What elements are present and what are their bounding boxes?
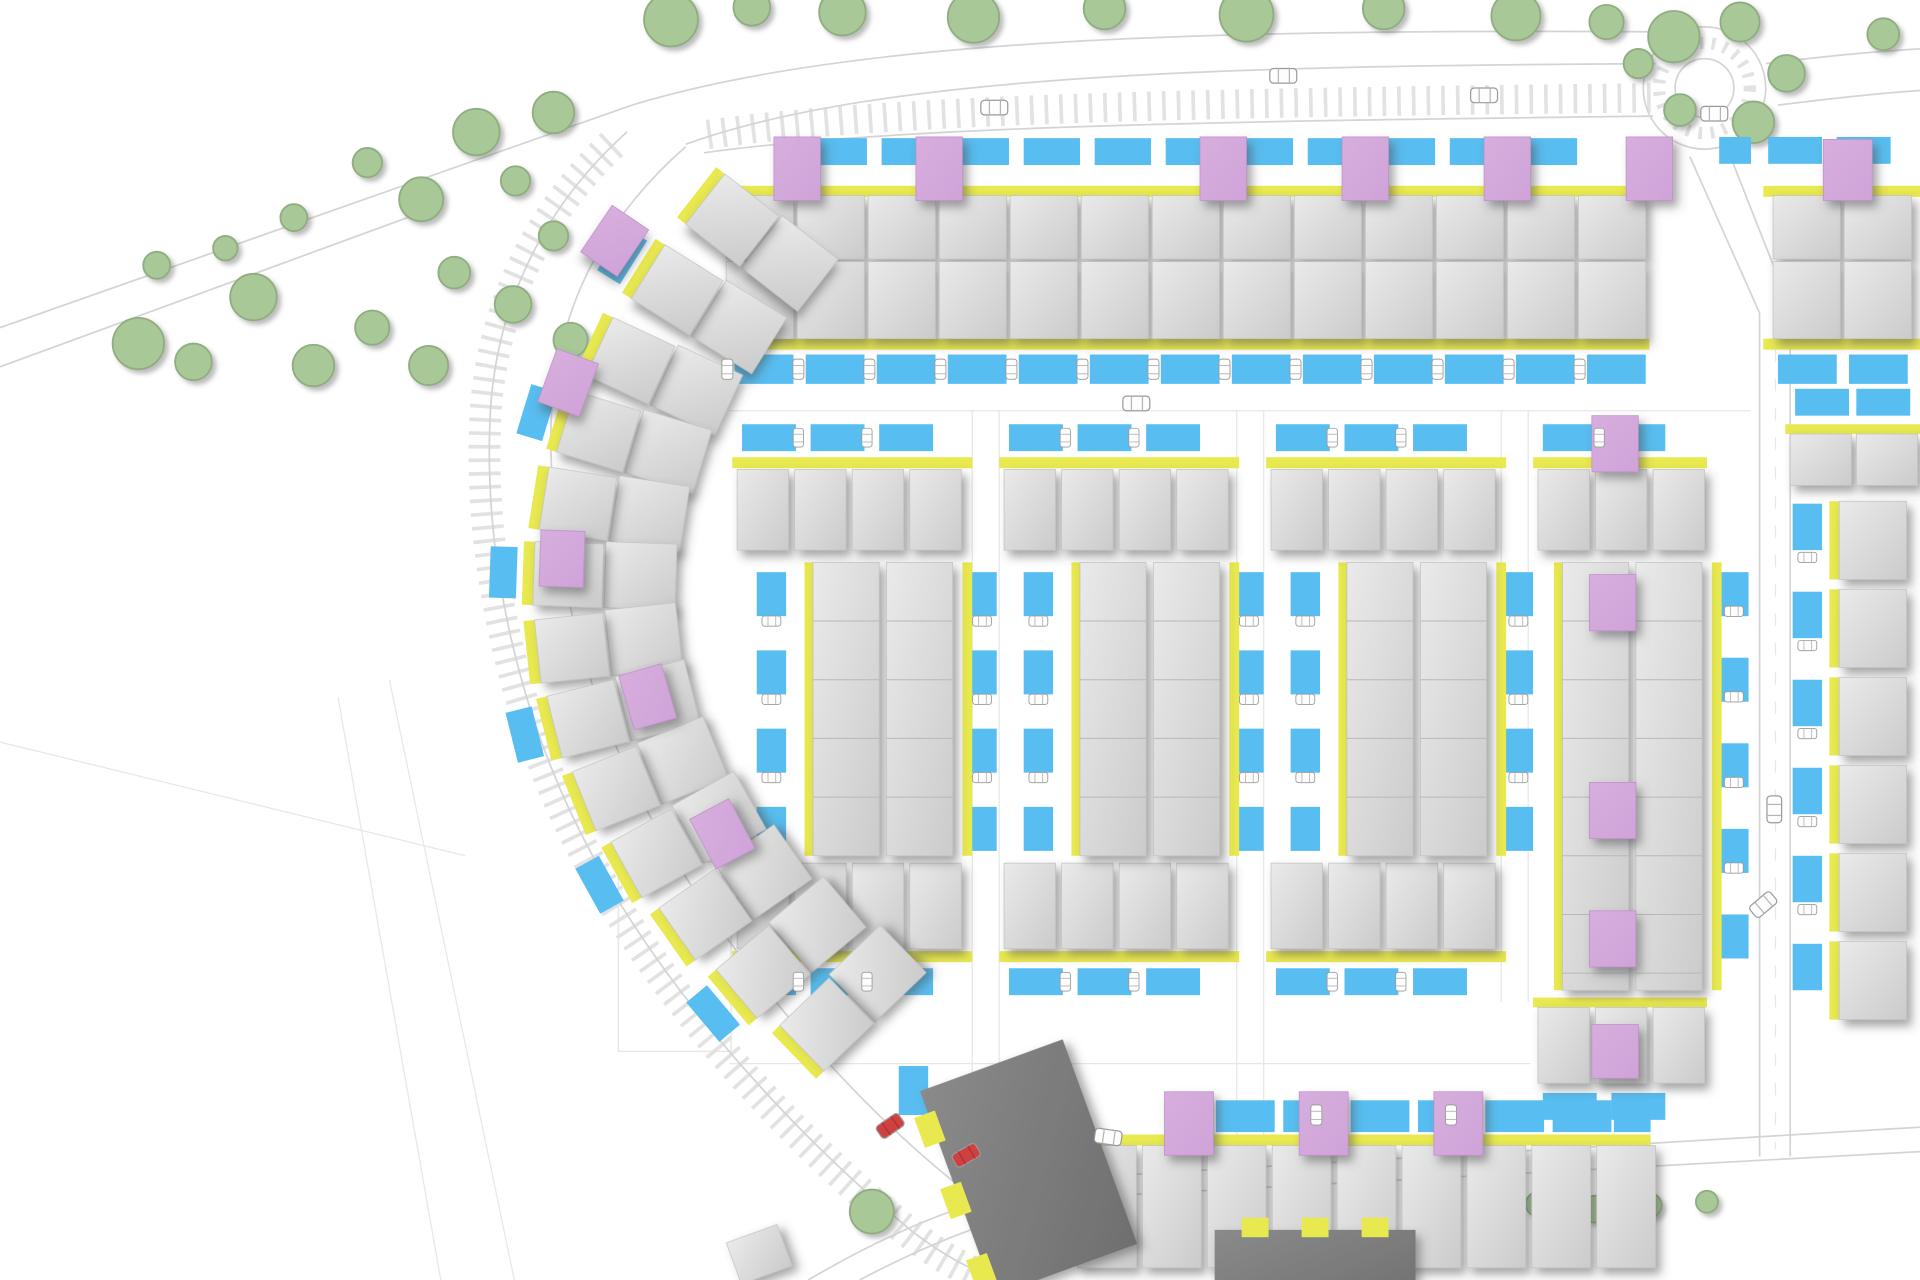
house — [1271, 469, 1322, 550]
tree-icon — [355, 311, 389, 345]
car-icon — [973, 616, 992, 626]
car-icon — [793, 972, 803, 991]
tree-icon — [1768, 55, 1805, 92]
house — [1152, 262, 1219, 339]
car-body — [1006, 359, 1017, 379]
car-body — [973, 772, 992, 782]
house — [1839, 853, 1906, 931]
parking-space — [1095, 138, 1151, 165]
house — [1081, 262, 1148, 339]
house — [1653, 1007, 1704, 1083]
parking-space — [1291, 807, 1320, 851]
car-icon — [1296, 772, 1315, 782]
tree-icon — [409, 346, 448, 385]
tree-icon — [113, 318, 164, 369]
car-body — [973, 694, 992, 704]
house — [1142, 1146, 1201, 1268]
car-body — [1724, 777, 1743, 787]
car-icon — [1574, 359, 1585, 379]
parking-space — [1504, 650, 1533, 694]
parking-space — [1719, 914, 1748, 958]
tree-icon — [175, 344, 212, 381]
house — [1119, 469, 1170, 550]
house — [1653, 469, 1704, 550]
tree-icon — [948, 0, 999, 43]
house — [910, 469, 961, 550]
tree-icon — [453, 109, 500, 155]
parking-space — [1291, 729, 1320, 773]
parking-space — [1232, 355, 1291, 384]
parking-space — [1504, 729, 1533, 773]
tree-icon — [644, 0, 698, 46]
car-body — [1077, 359, 1088, 379]
entrance-stub — [1242, 1218, 1269, 1238]
car-body — [793, 972, 803, 991]
apartment-block-group — [1215, 1218, 1416, 1280]
house — [1436, 196, 1503, 260]
car-body — [1396, 428, 1406, 447]
car-icon — [1148, 359, 1159, 379]
car-icon — [1798, 640, 1817, 650]
parking-space — [948, 355, 1007, 384]
parking-space — [1351, 1100, 1410, 1132]
house — [1856, 434, 1917, 485]
car-icon — [1270, 68, 1297, 83]
tree-icon — [143, 252, 170, 279]
car-icon — [1594, 428, 1604, 447]
parking-space — [806, 355, 865, 384]
tree-icon — [1720, 2, 1759, 41]
tree-icon — [501, 166, 530, 195]
terrace-block — [1636, 562, 1702, 990]
parking-space — [1009, 424, 1063, 451]
entrance-strip — [999, 951, 1239, 962]
entrance-strip — [1229, 562, 1239, 855]
entrance-strip — [962, 562, 972, 855]
entrance-strip — [1829, 589, 1839, 667]
house — [1578, 262, 1645, 339]
parking-space — [1024, 729, 1053, 773]
car-icon — [1701, 106, 1728, 121]
parking-space — [879, 424, 933, 451]
car-body — [1327, 428, 1337, 447]
car-body — [722, 359, 733, 379]
terrace-block — [1080, 562, 1146, 855]
entrance-strip — [722, 339, 1649, 350]
parking-space — [1614, 1100, 1651, 1132]
car-icon — [1767, 796, 1782, 823]
terrace-block — [1420, 562, 1486, 855]
house — [1436, 262, 1503, 339]
car-icon — [1327, 972, 1337, 991]
car-icon — [1509, 616, 1528, 626]
house — [868, 196, 935, 260]
parking-space — [1793, 504, 1822, 550]
parking-space — [1161, 355, 1220, 384]
car-body — [1432, 359, 1443, 379]
parking-space — [489, 546, 518, 598]
accent-house — [1299, 1092, 1348, 1156]
car-body — [1509, 772, 1528, 782]
house — [539, 467, 617, 540]
car-body — [1240, 694, 1259, 704]
car-body — [973, 616, 992, 626]
car-icon — [973, 694, 992, 704]
accent-house — [1434, 1092, 1483, 1156]
parking-space — [1344, 968, 1398, 995]
house — [1223, 196, 1290, 260]
parking-space — [1793, 592, 1822, 638]
house — [1152, 196, 1219, 260]
arc-accent-group — [539, 530, 585, 588]
parking-space — [877, 355, 936, 384]
car-body — [1724, 606, 1743, 616]
car-icon — [862, 972, 872, 991]
house — [1004, 469, 1055, 550]
house — [1773, 196, 1840, 260]
parking-space — [1856, 389, 1910, 416]
house — [1010, 262, 1077, 339]
entrance-stub — [1302, 1218, 1329, 1238]
car-icon — [1290, 359, 1301, 379]
car-body — [1219, 359, 1230, 379]
parking-space — [1291, 650, 1320, 694]
accent-house — [1626, 137, 1673, 201]
accent-house — [1589, 911, 1636, 967]
parking-space — [1516, 355, 1575, 384]
parking-space — [811, 424, 865, 451]
car-icon — [973, 772, 992, 782]
entrance-strip — [732, 457, 972, 468]
house — [604, 542, 677, 610]
car-icon — [1798, 728, 1817, 738]
car-body — [1396, 972, 1406, 991]
car-icon — [1432, 359, 1443, 379]
terrace-block — [1347, 562, 1413, 855]
parking-space — [1719, 137, 1751, 164]
accent-house — [539, 530, 585, 588]
house — [1839, 677, 1906, 755]
tree-icon — [399, 177, 443, 221]
entrance-strip — [1712, 562, 1722, 990]
car-icon — [1060, 428, 1070, 447]
tree-icon — [1696, 1191, 1718, 1213]
car-body — [1724, 692, 1743, 702]
tree-icon — [293, 345, 335, 387]
house — [1386, 469, 1437, 550]
accent-house — [1342, 137, 1389, 201]
parking-space — [757, 650, 786, 694]
tree-icon — [353, 148, 382, 177]
car-icon — [1798, 552, 1817, 562]
tree-icon — [1867, 18, 1899, 50]
car-icon — [793, 359, 804, 379]
car-icon — [762, 772, 781, 782]
house — [1177, 469, 1228, 550]
house — [1507, 262, 1574, 339]
car-icon — [1129, 972, 1139, 991]
car-body — [1509, 694, 1528, 704]
house — [1467, 1146, 1526, 1268]
car-icon — [1396, 972, 1406, 991]
car-body — [1471, 88, 1498, 103]
tree-icon — [1624, 49, 1653, 78]
entrance-strip — [1763, 339, 1920, 350]
parking-space — [1276, 424, 1330, 451]
tree-icon — [1733, 101, 1775, 143]
car-body — [1148, 359, 1159, 379]
house — [1444, 863, 1495, 949]
car-icon — [762, 694, 781, 704]
entrance-strip — [1829, 677, 1839, 755]
car-icon — [1396, 428, 1406, 447]
parking-space — [1146, 968, 1200, 995]
car-body — [935, 359, 946, 379]
house — [1177, 863, 1228, 949]
tree-icon — [539, 221, 568, 250]
house — [1062, 863, 1113, 949]
house — [1271, 863, 1322, 949]
car-icon — [1361, 359, 1372, 379]
car-icon — [1798, 904, 1817, 914]
car-icon — [1129, 428, 1139, 447]
car-icon — [981, 100, 1008, 115]
car-icon — [1724, 777, 1743, 787]
car-icon — [1503, 359, 1514, 379]
entrance-strip — [1829, 765, 1839, 843]
car-icon — [1724, 606, 1743, 616]
car-icon — [1798, 816, 1817, 826]
accent-house — [774, 137, 821, 201]
terrace-block — [813, 562, 879, 855]
car-body — [864, 359, 875, 379]
car-icon — [1240, 616, 1259, 626]
car-body — [981, 100, 1008, 115]
car-body — [1311, 1105, 1322, 1125]
car-body — [1060, 972, 1070, 991]
car-body — [1129, 428, 1139, 447]
car-icon — [864, 359, 875, 379]
house — [1365, 196, 1432, 260]
house — [1004, 863, 1055, 949]
car-body — [1798, 816, 1817, 826]
parking-space — [1413, 424, 1467, 451]
house — [1839, 941, 1906, 1019]
house — [1790, 434, 1851, 485]
car-body — [1029, 616, 1048, 626]
parking-space — [1024, 138, 1080, 165]
accent-house — [1589, 782, 1636, 838]
car-body — [762, 694, 781, 704]
house — [1839, 501, 1906, 579]
parking-space — [757, 729, 786, 773]
car-body — [1798, 640, 1817, 650]
parking-space — [1445, 355, 1504, 384]
parking-space — [1793, 944, 1822, 990]
house — [1081, 196, 1148, 260]
terrace-block — [887, 562, 953, 855]
car-icon — [1240, 772, 1259, 782]
parking-space — [1795, 389, 1849, 416]
car-icon — [762, 616, 781, 626]
tree-icon — [1491, 0, 1540, 40]
car-icon — [1094, 1128, 1123, 1146]
car-icon — [1219, 359, 1230, 379]
house — [1532, 1146, 1591, 1268]
car-body — [1129, 972, 1139, 991]
car-body — [793, 428, 803, 447]
car-body — [1296, 772, 1315, 782]
house — [1329, 863, 1380, 949]
car-icon — [1446, 1105, 1457, 1125]
house — [609, 476, 689, 552]
parking-space — [1543, 424, 1597, 451]
accent-house — [1592, 1024, 1639, 1078]
parking-space — [1344, 424, 1398, 451]
car-icon — [1029, 694, 1048, 704]
car-body — [1060, 428, 1070, 447]
car-body — [1701, 106, 1728, 121]
tree-icon — [533, 92, 575, 134]
parking-space — [1024, 807, 1053, 851]
car-body — [762, 616, 781, 626]
tree-icon — [1664, 94, 1696, 126]
house — [1538, 469, 1589, 550]
car-body — [1503, 359, 1514, 379]
terrace-block — [1153, 562, 1219, 855]
car-body — [1767, 796, 1782, 823]
house — [852, 469, 903, 550]
car-body — [1240, 772, 1259, 782]
car-icon — [1724, 692, 1743, 702]
site-plan-svg — [0, 0, 1920, 1280]
entrance-strip — [1266, 951, 1506, 962]
parking-space — [1849, 355, 1908, 384]
house — [1444, 469, 1495, 550]
parking-space — [1019, 355, 1078, 384]
parking-space — [1146, 424, 1200, 451]
parking-space — [1413, 968, 1467, 995]
car-body — [1296, 616, 1315, 626]
accent-house — [1589, 575, 1636, 631]
house — [1010, 196, 1077, 260]
house — [1839, 765, 1906, 843]
parking-space — [1216, 1100, 1275, 1132]
car-icon — [722, 359, 733, 379]
car-body — [1240, 616, 1259, 626]
house — [939, 262, 1006, 339]
car-body — [1724, 863, 1743, 873]
car-icon — [1029, 616, 1048, 626]
tree-icon — [230, 274, 277, 320]
parking-space — [1793, 680, 1822, 726]
car-icon — [1471, 88, 1498, 103]
house — [1839, 589, 1906, 667]
tree-icon — [850, 1190, 894, 1234]
entrance-strip — [1073, 1135, 1651, 1146]
car-icon — [1029, 772, 1048, 782]
accent-house — [916, 137, 963, 201]
entrance-strip — [999, 457, 1239, 468]
house — [1062, 469, 1113, 550]
accent-house — [1823, 139, 1872, 200]
house — [1538, 1007, 1589, 1083]
entrance-strip — [1533, 998, 1707, 1008]
house — [1773, 262, 1840, 339]
car-icon — [793, 428, 803, 447]
car-body — [1574, 359, 1585, 379]
parking-space — [1276, 968, 1330, 995]
parking-space — [1303, 355, 1362, 384]
parking-space — [1090, 355, 1149, 384]
house — [1119, 863, 1170, 949]
parking-space — [1587, 355, 1646, 384]
entrance-stub — [1362, 1218, 1389, 1238]
car-body — [1798, 728, 1817, 738]
house — [868, 262, 935, 339]
site-plan — [0, 0, 1920, 1280]
car-icon — [1060, 972, 1070, 991]
entrance-strip — [1829, 853, 1839, 931]
parking-space — [1485, 1100, 1544, 1132]
house — [939, 196, 1006, 260]
apartment-block — [1215, 1230, 1416, 1280]
house — [1844, 196, 1911, 260]
car-body — [762, 772, 781, 782]
car-body — [1094, 1128, 1123, 1146]
car-body — [1290, 359, 1301, 379]
car-icon — [1006, 359, 1017, 379]
car-body — [1361, 359, 1372, 379]
parking-space — [1793, 768, 1822, 814]
house — [1294, 262, 1361, 339]
car-body — [1798, 552, 1817, 562]
parking-space — [742, 424, 796, 451]
parking-space — [1768, 137, 1822, 164]
car-icon — [935, 359, 946, 379]
entrance-strip — [1496, 562, 1506, 855]
car-icon — [1311, 1105, 1322, 1125]
tree-icon — [495, 286, 532, 323]
house — [1596, 469, 1647, 550]
entrance-strip — [1266, 457, 1506, 468]
accent-house — [1200, 137, 1247, 201]
car-body — [1123, 396, 1150, 411]
parking-space — [1504, 807, 1533, 851]
car-body — [1509, 616, 1528, 626]
tree-icon — [1589, 5, 1623, 39]
car-body — [1446, 1105, 1457, 1125]
car-icon — [1327, 428, 1337, 447]
parking-space — [757, 572, 786, 616]
house — [1223, 262, 1290, 339]
tree-icon — [213, 236, 237, 260]
car-icon — [862, 428, 872, 447]
car-icon — [1509, 772, 1528, 782]
house — [534, 613, 609, 683]
parking-space — [1504, 572, 1533, 616]
parking-space — [1291, 572, 1320, 616]
car-body — [1029, 772, 1048, 782]
parking-space — [1009, 968, 1063, 995]
car-icon — [1077, 359, 1088, 379]
parking-space — [1024, 650, 1053, 694]
parking-space — [1374, 355, 1433, 384]
house — [1365, 262, 1432, 339]
car-body — [1798, 904, 1817, 914]
parking-space — [1078, 968, 1132, 995]
car-icon — [1123, 396, 1150, 411]
